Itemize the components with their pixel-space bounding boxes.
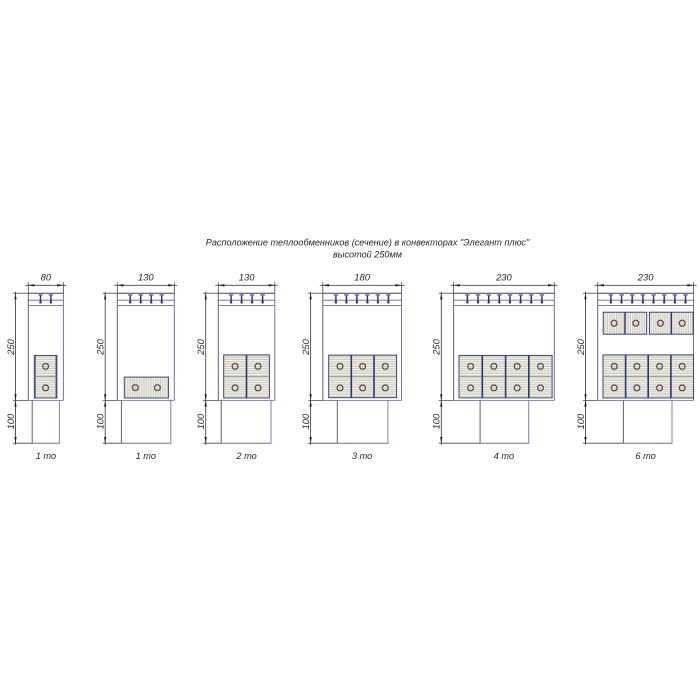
svg-text:2 то: 2 то <box>235 451 256 461</box>
svg-text:130: 130 <box>138 272 154 283</box>
svg-text:250: 250 <box>195 338 206 355</box>
svg-text:180: 180 <box>354 272 370 283</box>
svg-text:Расположение теплообменников (: Расположение теплообменников (сечение) в… <box>206 238 530 248</box>
svg-text:250: 250 <box>431 338 442 355</box>
svg-text:250: 250 <box>300 338 311 355</box>
svg-text:250: 250 <box>5 338 16 355</box>
svg-text:4 то: 4 то <box>494 451 514 461</box>
svg-text:1 то: 1 то <box>36 451 56 461</box>
svg-text:80: 80 <box>41 272 52 283</box>
svg-text:1 то: 1 то <box>136 451 156 461</box>
svg-text:100: 100 <box>300 413 311 429</box>
svg-text:230: 230 <box>495 272 512 283</box>
svg-text:100: 100 <box>5 413 16 429</box>
svg-text:6 то: 6 то <box>635 451 655 461</box>
svg-text:3 то: 3 то <box>352 451 372 461</box>
svg-text:100: 100 <box>575 413 586 429</box>
svg-text:100: 100 <box>95 413 106 429</box>
svg-text:высотой 250мм: высотой 250мм <box>333 250 403 260</box>
svg-text:250: 250 <box>575 338 586 355</box>
svg-text:230: 230 <box>637 272 654 283</box>
svg-text:100: 100 <box>195 413 206 429</box>
svg-text:250: 250 <box>95 338 106 355</box>
svg-text:130: 130 <box>239 272 255 283</box>
svg-text:100: 100 <box>431 413 442 429</box>
